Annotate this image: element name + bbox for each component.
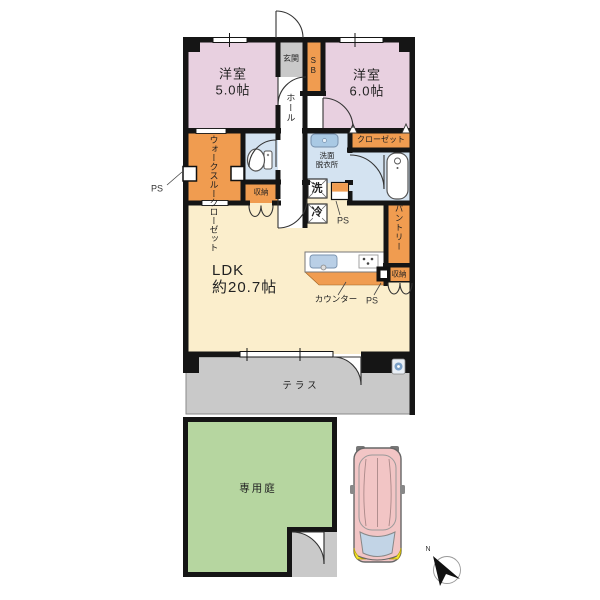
bathtub-icon <box>387 153 408 199</box>
private-garden-label: 専用庭 <box>239 483 277 496</box>
washroom-label: 洗面 脱衣所 <box>316 151 339 169</box>
ps-shaft-kitchen <box>377 267 391 282</box>
ps-label-kitchen: PS <box>366 296 378 307</box>
walk-through-closet-label: ウォークスルークローゼット <box>207 135 220 205</box>
faucet-icon <box>392 359 405 374</box>
ps-label-middle: PS <box>337 216 349 227</box>
closet-side-opening <box>231 167 244 181</box>
washroom-sink-icon <box>311 134 338 147</box>
terrace-label: テラス <box>282 380 319 391</box>
kitchen-counter <box>305 252 387 285</box>
stove-icon <box>359 255 378 268</box>
floor-plan-canvas <box>0 0 600 600</box>
toilet-storage-label: 収納 <box>254 188 269 197</box>
kitchen-sink-icon <box>310 255 337 270</box>
ps-label-left: PS <box>151 184 163 195</box>
counter-label: カウンター <box>315 294 358 304</box>
entrance-label: 玄関 <box>283 54 299 64</box>
closet-label: クローゼット <box>357 135 405 145</box>
shoe-box-label: SB <box>308 56 318 76</box>
floor-plan: 洋室 5.0帖 洋室 6.0帖 玄関 SB ホール ウォークスルークローゼット … <box>0 0 600 600</box>
pantry-label: パントリー <box>394 204 404 252</box>
washing-machine-label: 洗 <box>312 182 323 195</box>
north-arrow-icon <box>433 556 461 586</box>
toilet-icon <box>248 149 273 171</box>
ps-shaft-left <box>183 167 197 182</box>
bedroom-right-label: 洋室 6.0帖 <box>349 67 384 98</box>
ps-shaft-middle <box>332 183 349 200</box>
north-label: N <box>425 546 430 554</box>
kitchen-storage-label: 収納 <box>392 270 407 279</box>
car-illustration <box>350 446 405 562</box>
hall-label: ホール <box>285 93 296 123</box>
refrigerator-label: 冷 <box>312 206 323 219</box>
bedroom-left-label: 洋室 5.0帖 <box>215 66 250 97</box>
ldk-label: LDK 約20.7帖 <box>212 262 277 297</box>
entrance-door-arc <box>276 11 303 38</box>
